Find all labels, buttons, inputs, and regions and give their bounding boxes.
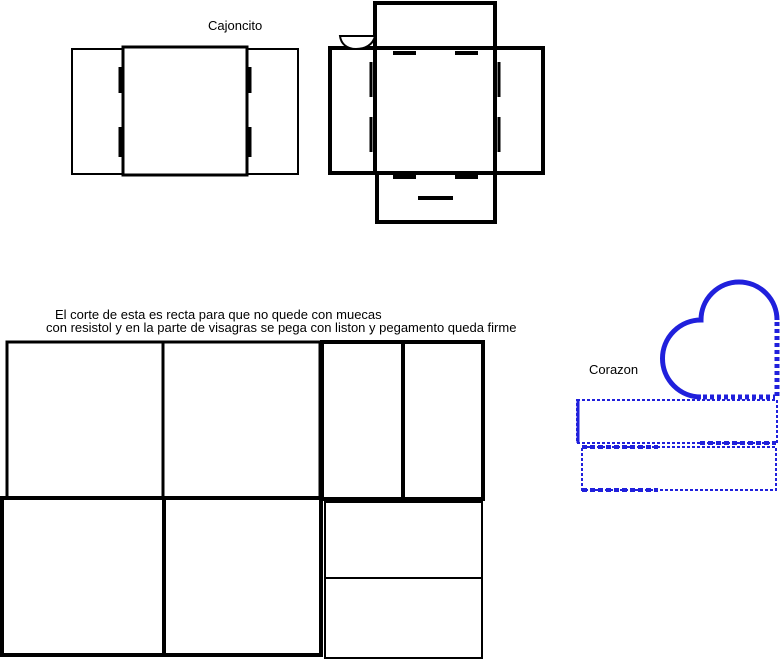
cajoncito-inner-square [123, 47, 247, 175]
heart-strip-2 [582, 447, 776, 490]
drawing-canvas: Cajoncito El corte de esta es recta para… [0, 0, 781, 662]
cajoncito-label: Cajoncito [208, 19, 262, 32]
note-line2: con resistol y en la parte de visagras s… [46, 321, 516, 334]
boxnet-center-square [375, 48, 495, 173]
template-left-bottom-rect [2, 498, 321, 655]
heart-body [663, 282, 778, 397]
corazon-label: Corazon [589, 363, 638, 376]
heart-strip-1 [577, 400, 777, 443]
template-right-bottom-rect [325, 502, 482, 658]
boxnet-top-flap [375, 3, 495, 48]
